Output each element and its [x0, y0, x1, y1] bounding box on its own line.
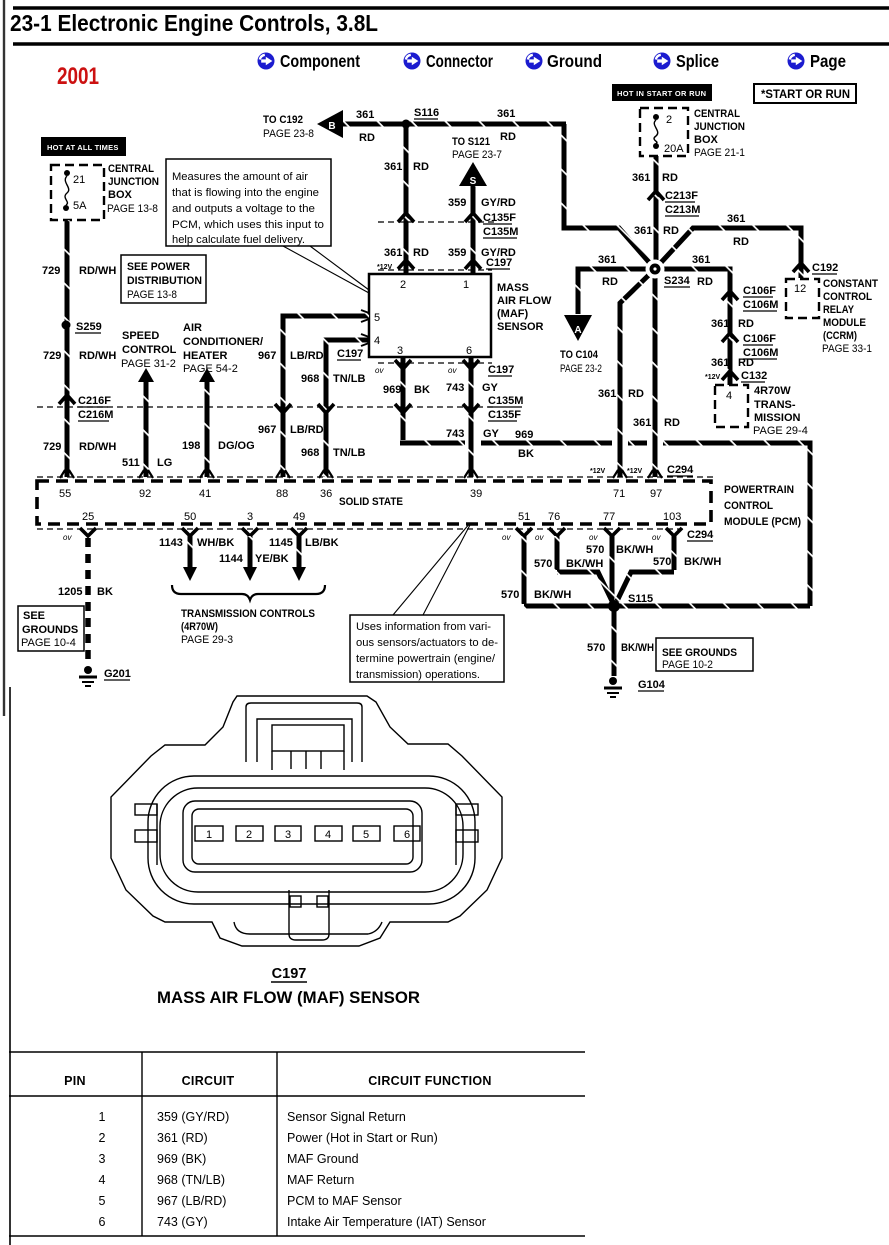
- svg-text:PAGE 29-3: PAGE 29-3: [181, 634, 233, 646]
- svg-text:HOT AT ALL TIMES: HOT AT ALL TIMES: [47, 143, 119, 152]
- svg-text:BK/WH: BK/WH: [566, 558, 603, 570]
- svg-text:BK/WH: BK/WH: [534, 589, 571, 601]
- svg-text:5: 5: [374, 312, 380, 324]
- svg-text:511: 511: [122, 457, 140, 469]
- svg-text:4: 4: [325, 829, 331, 841]
- svg-text:RD: RD: [359, 132, 375, 144]
- svg-text:743: 743: [446, 428, 464, 440]
- svg-text:ov: ov: [502, 533, 511, 542]
- svg-text:SOLID STATE: SOLID STATE: [339, 496, 403, 508]
- svg-text:PCM to MAF Sensor: PCM to MAF Sensor: [287, 1194, 402, 1208]
- svg-text:361: 361: [692, 254, 710, 266]
- svg-text:S116: S116: [414, 107, 439, 119]
- svg-text:4: 4: [374, 335, 380, 347]
- svg-text:C106M: C106M: [743, 299, 778, 311]
- svg-text:570: 570: [587, 642, 605, 654]
- svg-text:PAGE 13-8: PAGE 13-8: [127, 289, 177, 301]
- svg-text:help calculate fuel delivery.: help calculate fuel delivery.: [172, 234, 305, 246]
- svg-text:CONTROL: CONTROL: [122, 344, 177, 356]
- svg-text:SEE POWER: SEE POWER: [127, 261, 190, 273]
- svg-text:BOX: BOX: [108, 189, 133, 201]
- svg-text:AIR FLOW: AIR FLOW: [497, 295, 552, 307]
- svg-text:MAF Ground: MAF Ground: [287, 1152, 359, 1166]
- svg-text:*12V: *12V: [627, 468, 643, 475]
- svg-text:359 (GY/RD): 359 (GY/RD): [157, 1110, 229, 1124]
- svg-text:S115: S115: [628, 593, 653, 605]
- svg-text:S234: S234: [664, 275, 691, 287]
- svg-text:361: 361: [634, 225, 652, 237]
- svg-text:termine powertrain (engine/: termine powertrain (engine/: [356, 653, 496, 665]
- svg-text:C132: C132: [741, 370, 767, 382]
- svg-text:570: 570: [586, 544, 604, 556]
- svg-text:*START OR RUN: *START OR RUN: [761, 89, 850, 101]
- svg-text:LB/RD: LB/RD: [290, 350, 324, 362]
- svg-text:MASS: MASS: [497, 282, 529, 294]
- svg-text:TRANS-: TRANS-: [754, 399, 796, 411]
- svg-text:Page: Page: [810, 51, 846, 71]
- svg-text:PAGE 13-8: PAGE 13-8: [107, 203, 158, 215]
- svg-text:PCM, which uses this input to: PCM, which uses this input to: [172, 219, 324, 231]
- svg-text:PAGE 31-2: PAGE 31-2: [121, 358, 176, 370]
- svg-text:570: 570: [653, 556, 671, 568]
- svg-text:6: 6: [466, 345, 472, 357]
- svg-text:SPEED: SPEED: [122, 330, 159, 342]
- svg-text:PAGE 21-1: PAGE 21-1: [694, 147, 745, 159]
- svg-text:BOX: BOX: [694, 134, 719, 146]
- svg-text:ov: ov: [652, 533, 661, 542]
- svg-text:ov: ov: [589, 533, 598, 542]
- svg-text:C197: C197: [272, 966, 307, 982]
- svg-text:969: 969: [383, 384, 401, 396]
- svg-text:361: 361: [384, 247, 402, 259]
- svg-text:361: 361: [598, 254, 616, 266]
- svg-text:51: 51: [518, 511, 530, 523]
- svg-text:36: 36: [320, 488, 332, 500]
- svg-text:968 (TN/LB): 968 (TN/LB): [157, 1173, 225, 1187]
- svg-text:C216F: C216F: [78, 395, 111, 407]
- svg-text:*12V: *12V: [705, 374, 721, 381]
- svg-text:50: 50: [184, 511, 196, 523]
- svg-text:RD: RD: [628, 388, 644, 400]
- svg-text:967: 967: [258, 424, 276, 436]
- svg-text:2: 2: [666, 114, 672, 126]
- svg-text:71: 71: [613, 488, 625, 500]
- svg-text:CONDITIONER/: CONDITIONER/: [183, 336, 263, 348]
- svg-text:4: 4: [726, 390, 732, 402]
- svg-text:76: 76: [548, 511, 560, 523]
- svg-text:YE/BK: YE/BK: [255, 553, 289, 565]
- svg-text:HOT IN START OR RUN: HOT IN START OR RUN: [617, 89, 706, 98]
- svg-text:361: 361: [711, 357, 729, 369]
- svg-text:RD: RD: [413, 161, 429, 173]
- svg-text:3: 3: [397, 345, 403, 357]
- svg-text:359: 359: [448, 247, 466, 259]
- svg-text:PIN: PIN: [64, 1074, 86, 1088]
- svg-text:361: 361: [356, 109, 374, 121]
- svg-text:1: 1: [463, 279, 469, 291]
- svg-text:CONTROL: CONTROL: [823, 291, 872, 303]
- svg-text:RD: RD: [738, 357, 754, 369]
- svg-text:PAGE 23-8: PAGE 23-8: [263, 128, 314, 140]
- svg-text:C135M: C135M: [488, 395, 523, 407]
- svg-text:C197: C197: [337, 348, 363, 360]
- svg-text:DISTRIBUTION: DISTRIBUTION: [127, 275, 202, 287]
- svg-text:21: 21: [73, 174, 85, 186]
- svg-text:3: 3: [99, 1152, 106, 1166]
- svg-text:198: 198: [182, 440, 200, 452]
- svg-text:PAGE 54-2: PAGE 54-2: [183, 363, 238, 375]
- svg-text:GY: GY: [482, 382, 499, 394]
- svg-text:B: B: [328, 121, 335, 132]
- svg-text:Splice: Splice: [676, 51, 719, 71]
- svg-text:S: S: [470, 176, 477, 187]
- svg-text:A: A: [574, 325, 581, 336]
- svg-text:TO S121: TO S121: [452, 136, 490, 148]
- svg-text:Connector: Connector: [426, 51, 493, 71]
- svg-text:RD/WH: RD/WH: [79, 350, 116, 362]
- svg-text:23-1 Electronic Engine Control: 23-1 Electronic Engine Controls, 3.8L: [10, 10, 378, 36]
- svg-text:C197: C197: [486, 257, 512, 269]
- svg-text:729: 729: [43, 350, 61, 362]
- svg-text:GY: GY: [483, 428, 500, 440]
- svg-text:25: 25: [82, 511, 94, 523]
- svg-text:C197: C197: [488, 364, 514, 376]
- svg-text:RD: RD: [663, 225, 679, 237]
- svg-text:G104: G104: [638, 679, 666, 691]
- svg-text:103: 103: [663, 511, 681, 523]
- svg-text:743: 743: [446, 382, 464, 394]
- svg-text:PAGE 29-4: PAGE 29-4: [753, 425, 808, 437]
- svg-text:361: 361: [633, 417, 651, 429]
- svg-text:(CCRM): (CCRM): [823, 330, 857, 342]
- svg-text:C216M: C216M: [78, 409, 113, 421]
- svg-text:PAGE 10-2: PAGE 10-2: [662, 659, 713, 671]
- svg-text:JUNCTION: JUNCTION: [694, 121, 745, 133]
- svg-text:743 (GY): 743 (GY): [157, 1215, 208, 1229]
- svg-text:968: 968: [301, 373, 319, 385]
- svg-text:RD: RD: [413, 247, 429, 259]
- svg-text:12: 12: [794, 283, 806, 295]
- svg-text:CIRCUIT FUNCTION: CIRCUIT FUNCTION: [368, 1074, 492, 1088]
- svg-text:729: 729: [43, 441, 61, 453]
- svg-text:S259: S259: [76, 321, 102, 333]
- svg-text:BK/WH: BK/WH: [616, 544, 653, 556]
- svg-text:CONSTANT: CONSTANT: [823, 278, 878, 290]
- svg-text:361: 361: [632, 172, 650, 184]
- svg-text:LB/BK: LB/BK: [305, 537, 339, 549]
- svg-text:RD: RD: [738, 318, 754, 330]
- svg-text:(MAF): (MAF): [497, 308, 528, 320]
- svg-text:55: 55: [59, 488, 71, 500]
- svg-text:39: 39: [470, 488, 482, 500]
- svg-text:Ground: Ground: [547, 51, 602, 71]
- svg-text:TO C104: TO C104: [560, 349, 599, 361]
- svg-text:*12V: *12V: [590, 468, 606, 475]
- svg-text:Sensor Signal Return: Sensor Signal Return: [287, 1110, 406, 1124]
- svg-text:3: 3: [285, 829, 291, 841]
- svg-text:C294: C294: [687, 529, 714, 541]
- svg-text:ov: ov: [375, 366, 384, 375]
- svg-text:969: 969: [515, 429, 533, 441]
- svg-text:1145: 1145: [269, 537, 293, 549]
- svg-text:GY/RD: GY/RD: [481, 197, 516, 209]
- svg-text:MODULE: MODULE: [823, 317, 866, 329]
- svg-text:1144: 1144: [219, 553, 244, 565]
- svg-text:TN/LB: TN/LB: [333, 373, 365, 385]
- svg-text:C213M: C213M: [665, 204, 700, 216]
- svg-text:that is flowing into the engin: that is flowing into the engine: [172, 187, 319, 199]
- svg-text:TN/LB: TN/LB: [333, 447, 365, 459]
- svg-text:5: 5: [99, 1194, 106, 1208]
- svg-text:C213F: C213F: [665, 190, 698, 202]
- svg-text:SEE GROUNDS: SEE GROUNDS: [662, 647, 737, 659]
- svg-text:ous sensors/actuators to de-: ous sensors/actuators to de-: [356, 637, 498, 649]
- svg-text:RD: RD: [733, 236, 749, 248]
- svg-text:MISSION: MISSION: [754, 412, 801, 424]
- svg-text:GROUNDS: GROUNDS: [22, 624, 78, 636]
- svg-text:CENTRAL: CENTRAL: [694, 108, 740, 120]
- svg-text:MODULE (PCM): MODULE (PCM): [724, 516, 801, 528]
- svg-text:CIRCUIT: CIRCUIT: [182, 1074, 235, 1088]
- svg-text:88: 88: [276, 488, 288, 500]
- svg-text:49: 49: [293, 511, 305, 523]
- svg-text:RD: RD: [664, 417, 680, 429]
- svg-text:RD: RD: [662, 172, 678, 184]
- svg-text:(4R70W): (4R70W): [181, 621, 218, 633]
- svg-text:BK: BK: [518, 448, 534, 460]
- svg-text:570: 570: [501, 589, 519, 601]
- svg-text:361: 361: [384, 161, 402, 173]
- svg-text:BK/WH: BK/WH: [621, 642, 654, 654]
- svg-text:ov: ov: [63, 533, 72, 542]
- svg-text:C135F: C135F: [483, 212, 516, 224]
- svg-text:WH/BK: WH/BK: [197, 537, 234, 549]
- svg-text:4R70W: 4R70W: [754, 385, 791, 397]
- svg-text:1143: 1143: [159, 537, 183, 549]
- svg-text:PAGE 23-2: PAGE 23-2: [560, 363, 602, 375]
- svg-text:C106F: C106F: [743, 333, 776, 345]
- svg-text:TRANSMISSION CONTROLS: TRANSMISSION CONTROLS: [181, 608, 315, 620]
- svg-text:BK/WH: BK/WH: [684, 556, 721, 568]
- svg-text:transmission) operations.: transmission) operations.: [356, 669, 480, 681]
- svg-text:729: 729: [42, 265, 60, 277]
- svg-text:5A: 5A: [73, 200, 87, 212]
- svg-text:C294: C294: [667, 464, 694, 476]
- svg-text:LB/RD: LB/RD: [290, 424, 324, 436]
- svg-text:PAGE 33-1: PAGE 33-1: [822, 343, 872, 355]
- svg-text:RD: RD: [697, 276, 713, 288]
- svg-text:967: 967: [258, 350, 276, 362]
- svg-text:TO C192: TO C192: [263, 114, 303, 126]
- svg-text:C106F: C106F: [743, 285, 776, 297]
- svg-text:2: 2: [99, 1131, 106, 1145]
- svg-text:4: 4: [99, 1173, 106, 1187]
- svg-text:Uses information from vari-: Uses information from vari-: [356, 621, 491, 633]
- svg-text:G201: G201: [104, 668, 131, 680]
- svg-text:361: 361: [497, 108, 515, 120]
- svg-text:MASS AIR FLOW (MAF) SENSOR: MASS AIR FLOW (MAF) SENSOR: [157, 988, 420, 1007]
- svg-text:361: 361: [711, 318, 729, 330]
- svg-text:2001: 2001: [57, 63, 99, 90]
- svg-text:361 (RD): 361 (RD): [157, 1131, 208, 1145]
- svg-text:RD: RD: [602, 276, 618, 288]
- svg-text:MAF Return: MAF Return: [287, 1173, 354, 1187]
- svg-text:JUNCTION: JUNCTION: [108, 176, 159, 188]
- svg-text:C192: C192: [812, 262, 838, 274]
- svg-text:967 (LB/RD): 967 (LB/RD): [157, 1194, 226, 1208]
- svg-text:C135M: C135M: [483, 226, 518, 238]
- svg-text:Power (Hot in Start or Run): Power (Hot in Start or Run): [287, 1131, 438, 1145]
- svg-text:POWERTRAIN: POWERTRAIN: [724, 484, 794, 496]
- svg-text:77: 77: [603, 511, 615, 523]
- svg-text:RD/WH: RD/WH: [79, 441, 116, 453]
- svg-text:RD: RD: [500, 131, 516, 143]
- svg-text:20A: 20A: [664, 143, 684, 155]
- svg-text:5: 5: [363, 829, 369, 841]
- svg-text:RELAY: RELAY: [823, 304, 855, 316]
- svg-text:359: 359: [448, 197, 466, 209]
- svg-text:6: 6: [99, 1215, 106, 1229]
- svg-text:968: 968: [301, 447, 319, 459]
- svg-text:SEE: SEE: [23, 610, 45, 622]
- svg-text:BK: BK: [414, 384, 430, 396]
- svg-text:Intake Air Temperature (IAT) S: Intake Air Temperature (IAT) Sensor: [287, 1215, 486, 1229]
- svg-text:41: 41: [199, 488, 211, 500]
- svg-text:6: 6: [404, 829, 410, 841]
- svg-text:1205: 1205: [58, 586, 82, 598]
- svg-text:AIR: AIR: [183, 322, 202, 334]
- svg-text:PAGE 23-7: PAGE 23-7: [452, 149, 502, 161]
- svg-text:SENSOR: SENSOR: [497, 321, 544, 333]
- svg-text:HEATER: HEATER: [183, 350, 227, 362]
- svg-text:Component: Component: [280, 51, 360, 71]
- svg-text:BK: BK: [97, 586, 113, 598]
- svg-text:ov: ov: [535, 533, 544, 542]
- svg-text:CENTRAL: CENTRAL: [108, 163, 154, 175]
- svg-text:PAGE 10-4: PAGE 10-4: [21, 637, 76, 649]
- svg-text:1: 1: [99, 1110, 106, 1124]
- svg-text:969 (BK): 969 (BK): [157, 1152, 206, 1166]
- svg-text:92: 92: [139, 488, 151, 500]
- svg-text:97: 97: [650, 488, 662, 500]
- svg-text:570: 570: [534, 558, 552, 570]
- svg-text:361: 361: [598, 388, 616, 400]
- svg-text:2: 2: [400, 279, 406, 291]
- svg-text:1: 1: [206, 829, 212, 841]
- svg-text:3: 3: [247, 511, 253, 523]
- svg-text:and outputs a voltage to the: and outputs a voltage to the: [172, 203, 315, 215]
- svg-text:RD/WH: RD/WH: [79, 265, 116, 277]
- svg-text:2: 2: [246, 829, 252, 841]
- svg-text:LG: LG: [157, 457, 172, 469]
- svg-text:C135F: C135F: [488, 409, 521, 421]
- svg-text:361: 361: [727, 213, 745, 225]
- svg-text:CONTROL: CONTROL: [724, 500, 773, 512]
- svg-text:Measures the amount of air: Measures the amount of air: [172, 171, 308, 183]
- svg-text:ov: ov: [448, 366, 457, 375]
- svg-text:DG/OG: DG/OG: [218, 440, 255, 452]
